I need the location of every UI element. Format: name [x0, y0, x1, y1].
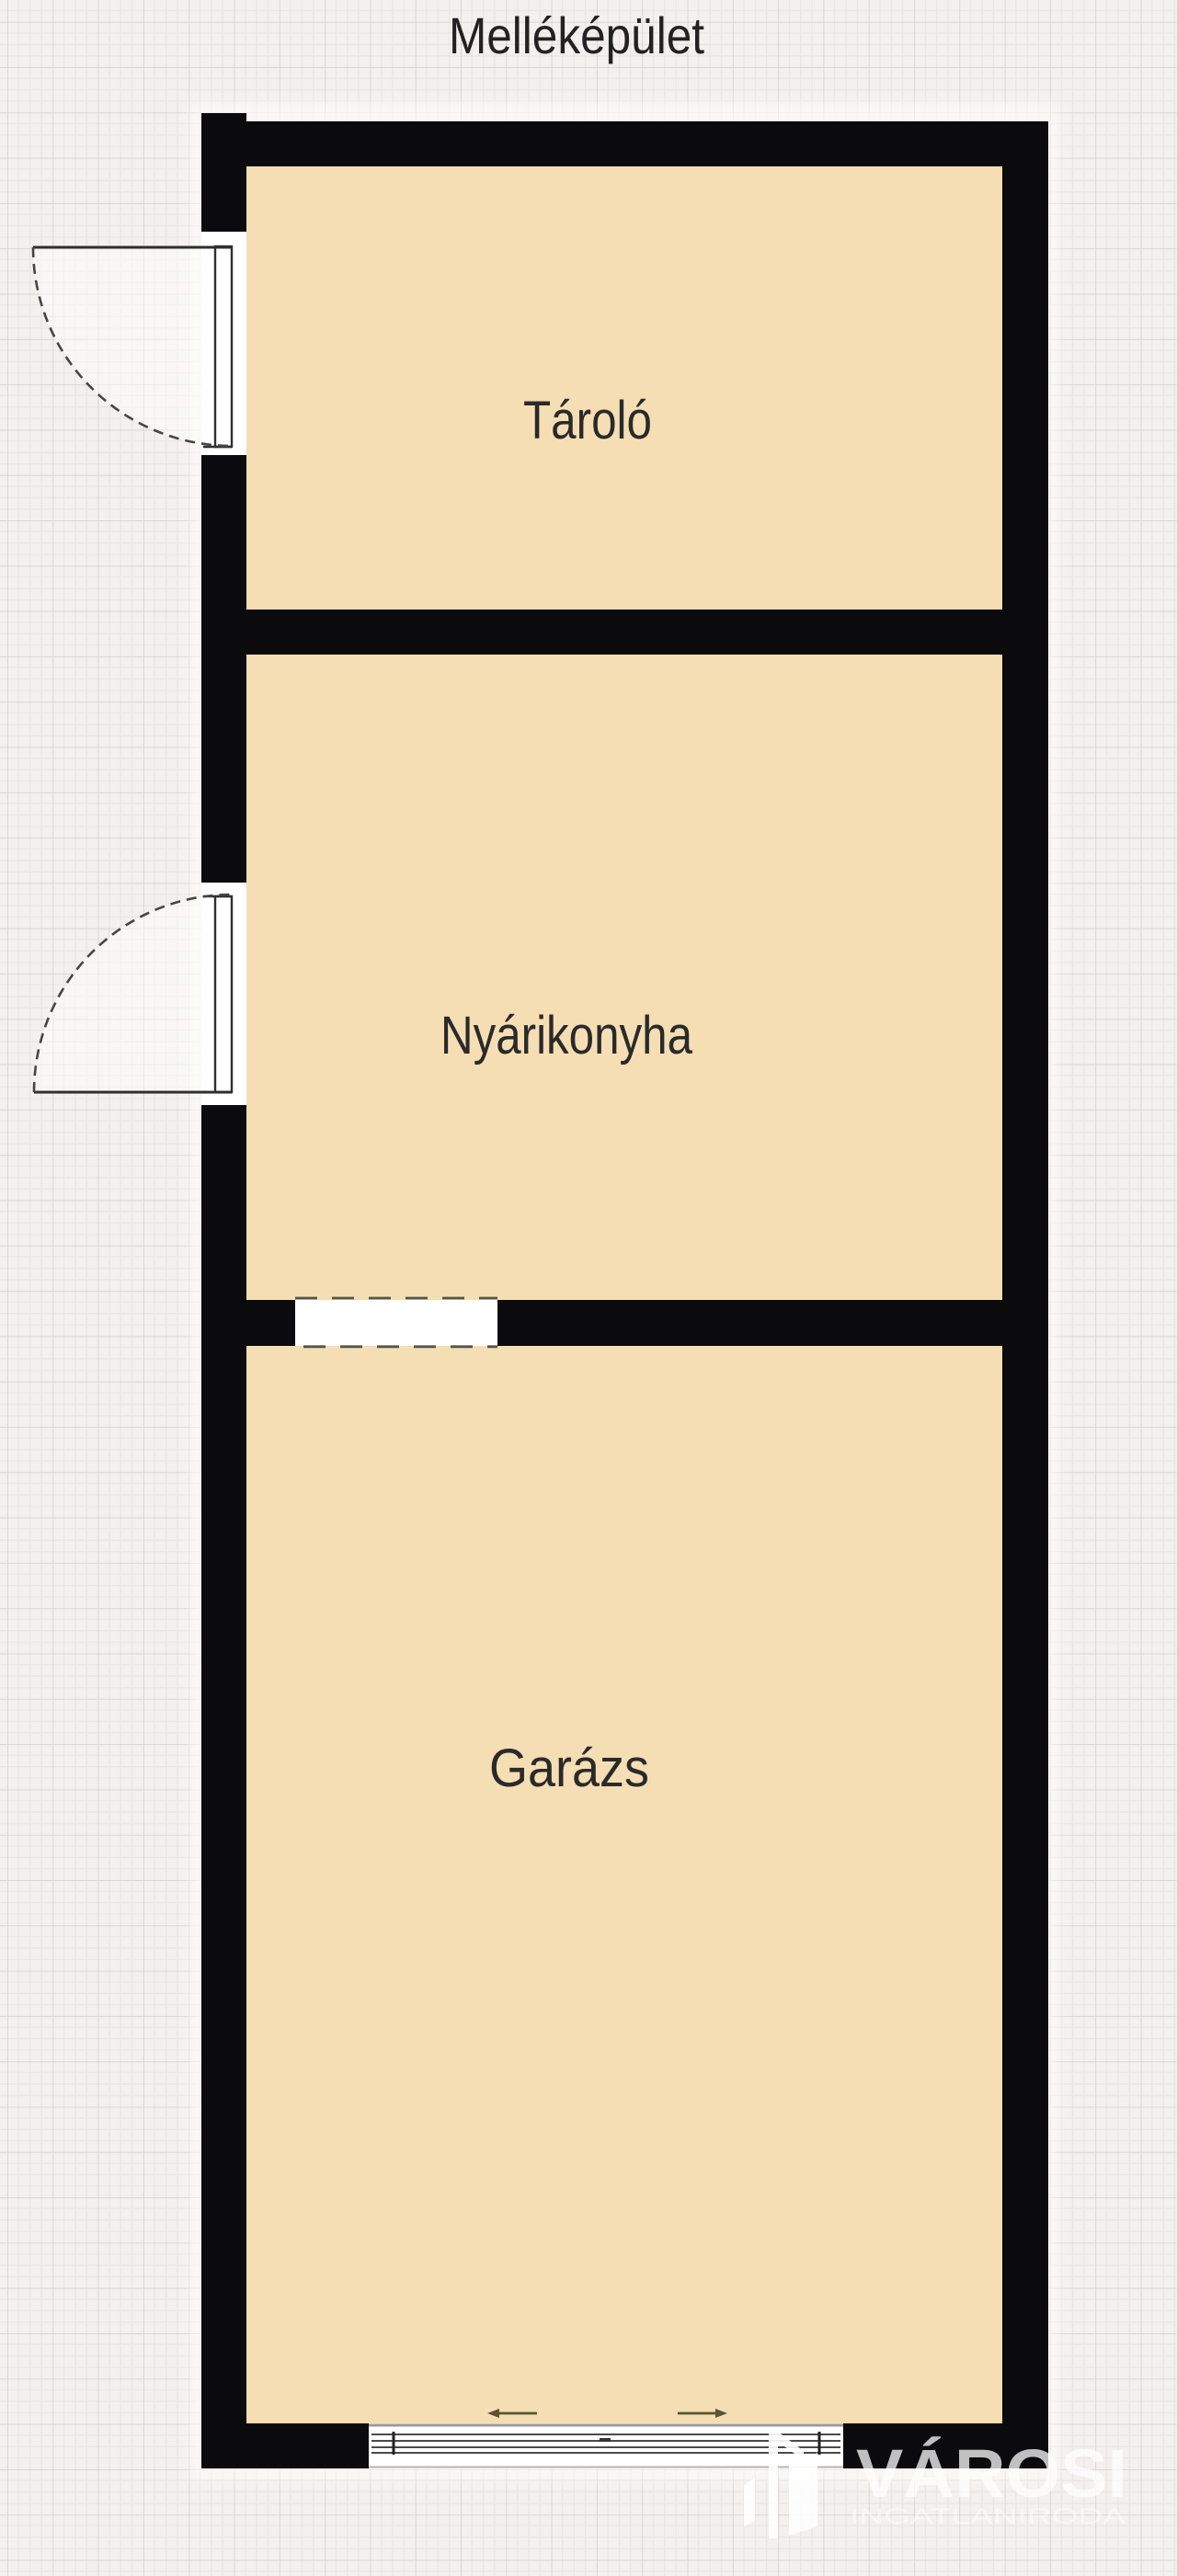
svg-text:VÁROSI: VÁROSI	[856, 2435, 1127, 2512]
svg-text:Tároló: Tároló	[523, 391, 652, 450]
svg-text:Nyárikonyha: Nyárikonyha	[440, 1006, 693, 1066]
svg-text:INGATLANIRODA: INGATLANIRODA	[850, 2504, 1126, 2529]
svg-text:Garázs: Garázs	[489, 1738, 649, 1798]
svg-text:Melléképület: Melléképület	[449, 6, 704, 64]
